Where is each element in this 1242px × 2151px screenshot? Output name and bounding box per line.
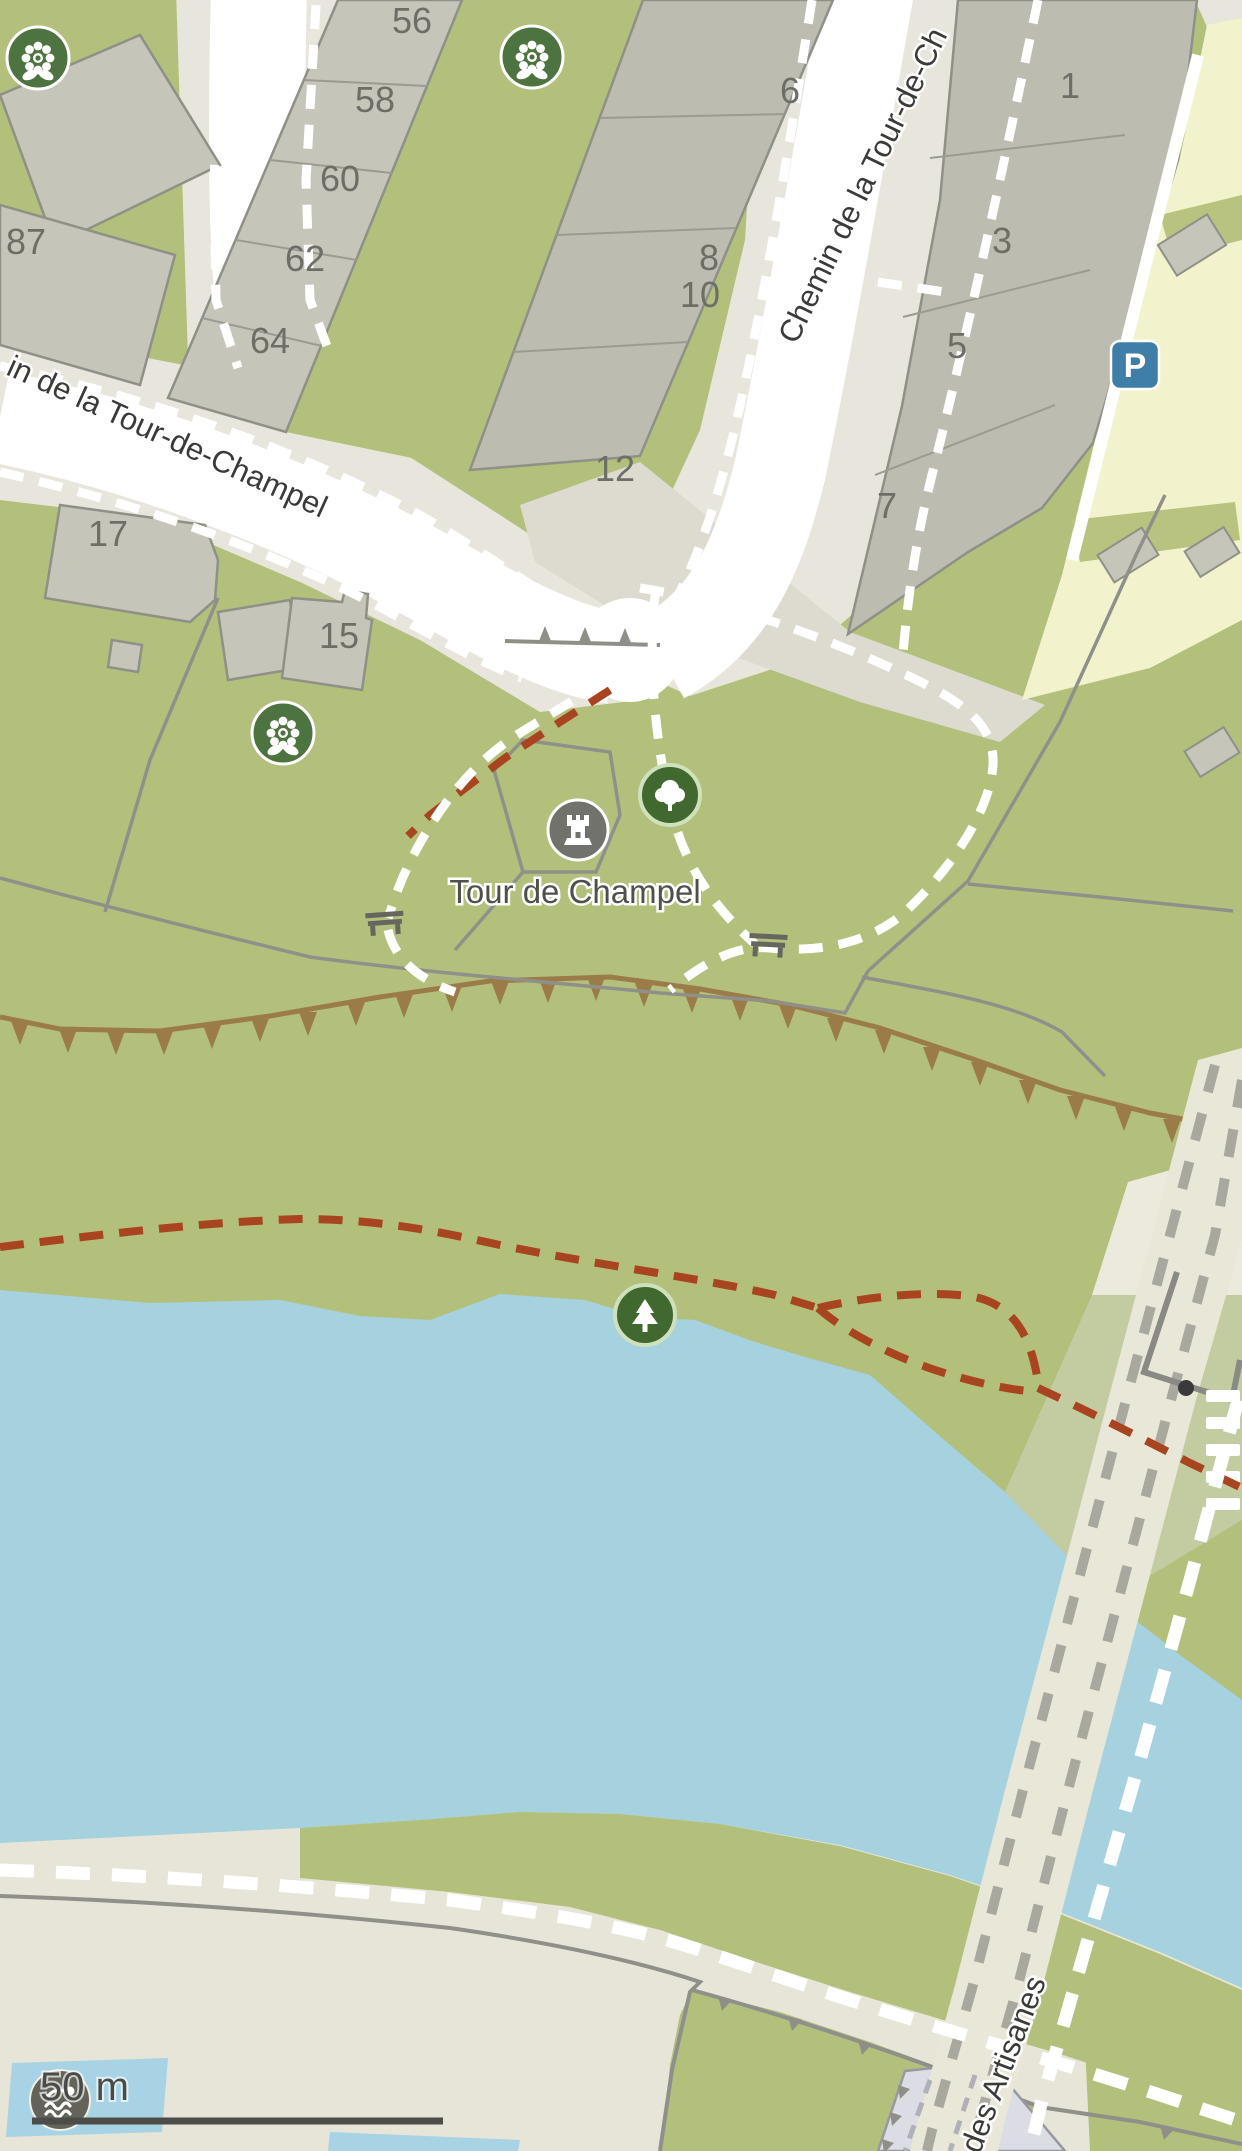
house-number-7: 7 xyxy=(877,485,897,526)
path-node-dot xyxy=(1178,1380,1194,1396)
house-number-12: 12 xyxy=(595,448,635,489)
scale-label: 50 m xyxy=(40,2065,129,2109)
conifer-tree-icon[interactable] xyxy=(615,1285,675,1345)
castle-tower-icon[interactable] xyxy=(548,800,608,860)
poi-label-tour-de-champel: Tour de Champel xyxy=(449,873,700,910)
deciduous-tree-icon[interactable] xyxy=(640,765,700,825)
house-number-5: 5 xyxy=(947,325,967,366)
flower-icon[interactable] xyxy=(501,26,563,88)
house-number-58: 58 xyxy=(355,79,395,120)
house-number-15: 15 xyxy=(319,615,359,656)
house-number-56: 56 xyxy=(392,0,432,41)
house-number-1: 1 xyxy=(1060,65,1080,106)
flower-icon[interactable] xyxy=(7,27,69,89)
map-canvas[interactable]: P Chemin de la Tour-de-Ch in de la Tour-… xyxy=(0,0,1242,2151)
house-number-17: 17 xyxy=(88,513,128,554)
map-app: { "map_labels": { "poi_tour": "Tour de C… xyxy=(0,0,1242,2151)
parking-icon[interactable]: P xyxy=(1111,341,1159,389)
building-17-annex xyxy=(108,640,142,672)
house-number-6: 6 xyxy=(780,70,800,111)
house-number-10: 10 xyxy=(680,274,720,315)
house-number-64: 64 xyxy=(250,320,290,361)
house-number-60: 60 xyxy=(320,158,360,199)
house-number-8: 8 xyxy=(699,237,719,278)
parking-letter: P xyxy=(1124,347,1147,385)
flower-icon[interactable] xyxy=(252,702,314,764)
house-number-62: 62 xyxy=(285,238,325,279)
house-number-87: 87 xyxy=(6,221,46,262)
house-number-3: 3 xyxy=(992,220,1012,261)
